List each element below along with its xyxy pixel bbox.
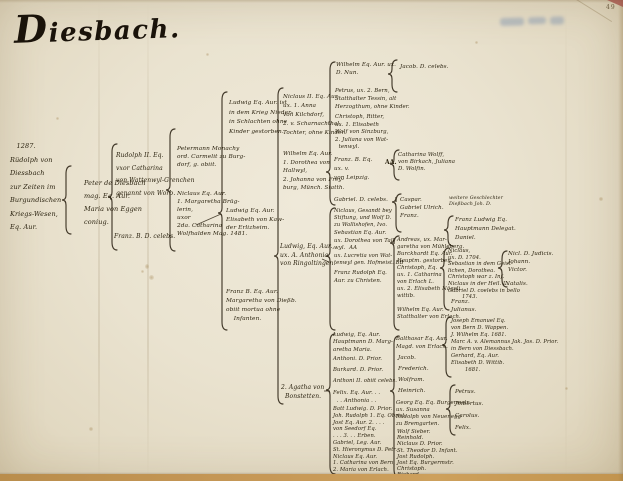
corner-fold	[607, 0, 623, 7]
tree-node: AA.	[385, 159, 397, 166]
foxing-spot	[599, 197, 603, 201]
page-edge-right	[618, 0, 623, 481]
foxing-spot	[141, 270, 144, 273]
paper-crease	[98, 0, 100, 481]
tree-node: Natalis.	[505, 281, 528, 288]
tree-node: Ludwig Eq. Aur. Elisabeth von Kaw- der E…	[226, 207, 284, 233]
tree-node: Franz. B. Eq. ux. v. von Leipzig.	[334, 156, 372, 183]
tree-node: Ludwig, Eq. Aur. Hauptmann D. Marg- aret…	[333, 332, 393, 354]
tree-node: Nicl. D. Judicis. Johann. Victor.	[508, 250, 554, 274]
tree-node: Niclaus, Gesandt bey Stiftung, und Wolf …	[334, 208, 392, 229]
tree-node: Joseph Emanuel Eq. von Bern D. Wappen. J…	[451, 318, 558, 374]
tree-node: Wilhelm Eq. Aur. ux. D. Nun.	[336, 61, 396, 77]
tree-node: Ludwig, Eq. Aur., ux. A. Anthonia von Ri…	[280, 243, 336, 269]
paper-crease	[565, 0, 567, 481]
tree-node: Sebastian Eq. Aur. ux. Dorothea von Tal-…	[334, 230, 395, 253]
tree-node: 2. Agatha von Bonstetten.	[281, 383, 324, 401]
tree-node: Anthoni. D. Prior.	[333, 356, 382, 363]
foxing-spot	[475, 41, 478, 44]
tree-node: Balthasar Eq. Aur. Magd. von Erlach.	[396, 336, 448, 351]
tree-node: 1287. Rüdolph von Diessbach zur Zeiten i…	[10, 140, 61, 235]
tree-node: Jacob. Frederich. Wolfram. Heinrich.	[398, 353, 429, 397]
page-edge-backing	[0, 474, 623, 481]
paper-crease	[147, 0, 149, 481]
tree-node: Franz. Julianus.	[451, 298, 477, 314]
foxing-spot	[206, 53, 209, 56]
manuscript-page: Diesbach. 49 1287. Rüdolph von Diessbach…	[0, 0, 623, 481]
tree-node: Burkard. D. Prior.	[333, 367, 383, 374]
tree-node: Christoph, Ritter, ux. 1. Elisabeth Wolf…	[335, 114, 389, 152]
tree-node: Franz. B. D. celebs.	[114, 233, 175, 241]
genealogy-braces	[0, 0, 623, 481]
page-edge-top	[0, 0, 623, 3]
tree-node: Franz Rudolph Eq. Aur. zu Christen.	[334, 270, 387, 285]
foxing-spot	[565, 387, 568, 390]
tree-node: Franz B. Eq. Aur. Margaretha von Dießb. …	[226, 288, 297, 324]
tree-node: Petermann Monachy ord. Carmelit zu Burg-…	[177, 145, 245, 169]
tree-node: Caspar. Gabriel Ulrich. Franz.	[400, 196, 444, 220]
tree-node: Jacob. D. celebs.	[400, 64, 449, 71]
tree-node: Anthoni II. obiit celebs.	[333, 378, 397, 385]
foxing-spot	[56, 117, 59, 120]
ink-bleed-stamp	[500, 9, 580, 29]
tree-node: Catharina Wolff, von Birkach, Juliana D.…	[398, 152, 455, 173]
foxing-spot	[145, 264, 149, 269]
tree-node: Petrus, ux. 2. Bern, Statthalter Tessin,…	[335, 87, 410, 111]
tree-node: Petrus. Jmbertus. Carolus. Felix.	[455, 386, 484, 434]
tree-node: Gabriel. D. celebs.	[334, 197, 388, 204]
foxing-spot	[89, 427, 93, 431]
tree-node: weitere Geschlechter Dießbach Joh. D.	[449, 196, 503, 208]
tree-node: ux. Lucretia von Wat- tenwyl gen. Hofmei…	[334, 253, 404, 268]
tree-node: Franz Ludwig Eq. Hauptmann Delegat. Dani…	[455, 216, 516, 243]
foxing-spot	[149, 275, 154, 280]
tree-node: Felix. Eq. Aur. . . . . Anthonia . .	[333, 389, 380, 405]
